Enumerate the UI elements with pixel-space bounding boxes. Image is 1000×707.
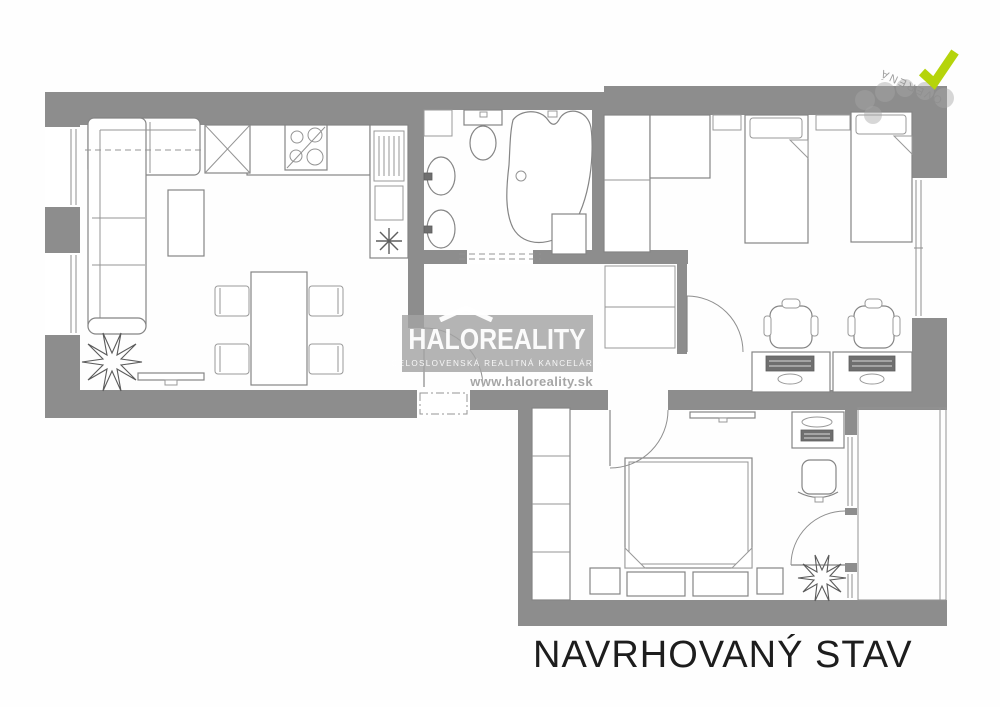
wall-living-hall	[408, 125, 424, 328]
pier-balcony-top	[845, 410, 857, 435]
wardrobe	[532, 408, 570, 600]
wall-top-bathroom	[424, 92, 604, 110]
wardrobe	[604, 115, 710, 252]
sliding-door-bathroom	[459, 250, 541, 264]
balcony-floor	[858, 408, 940, 600]
balcony-railing	[940, 408, 946, 600]
tap	[548, 111, 557, 117]
nightstand	[757, 568, 783, 594]
plant	[798, 555, 846, 601]
plant	[82, 333, 142, 391]
mouse	[860, 374, 884, 384]
house-roof-icon	[436, 304, 496, 322]
door-kids-room	[687, 296, 743, 352]
keyboard	[801, 430, 833, 441]
kids-bedroom	[604, 112, 912, 392]
wall-bottom	[518, 600, 947, 626]
wall-kids-right-bottom	[912, 318, 947, 392]
shelf	[816, 115, 850, 130]
tall-cabinet	[205, 125, 250, 173]
wall-master-top-right	[668, 390, 947, 410]
watermark: HALOREALITY CELOSLOVENSKÁ REALITNÁ KANCE…	[402, 315, 593, 372]
toilet	[464, 110, 502, 160]
keyboard	[849, 356, 895, 371]
sink	[375, 186, 403, 220]
door-balcony	[791, 511, 845, 565]
window-kids-right	[914, 180, 923, 316]
dining-set	[215, 272, 343, 385]
stove	[285, 125, 327, 170]
window-living-bottom	[45, 253, 80, 335]
entry-door	[417, 390, 470, 418]
wall-tv	[690, 412, 755, 422]
wall-master-top-left	[470, 390, 608, 410]
tv-stand	[138, 373, 204, 385]
single-bed	[745, 115, 808, 243]
watermark-url: www.haloreality.sk	[402, 374, 593, 389]
bed-bench	[627, 572, 685, 596]
keyboard	[766, 356, 814, 371]
dish-drainer	[374, 131, 404, 181]
speaker	[802, 417, 832, 427]
shower-niche	[424, 110, 452, 136]
bathroom-cabinet	[552, 214, 586, 254]
shelf	[713, 115, 741, 130]
sofa-armrest	[88, 318, 146, 334]
double-bed	[625, 458, 752, 568]
mouse	[778, 374, 802, 384]
balcony	[858, 408, 946, 600]
watermark-brand: HALOREALITY	[409, 326, 586, 355]
wall-bathroom-bottom-left	[424, 250, 467, 264]
washbasin	[424, 157, 455, 195]
wall-top-right	[604, 86, 947, 115]
office-chair	[764, 299, 818, 348]
pillow	[750, 118, 802, 138]
desk	[792, 412, 844, 448]
tv	[138, 373, 204, 380]
pier-balcony-low	[845, 563, 857, 572]
bed-bench	[693, 572, 748, 596]
nightstand	[590, 568, 620, 594]
wall-vestibule	[677, 264, 687, 354]
hall-closet	[605, 266, 675, 348]
bathroom	[424, 110, 592, 264]
single-bed	[851, 112, 912, 242]
watermark-tagline: CELOSLOVENSKÁ REALITNÁ KANCELÁRIA	[391, 358, 603, 368]
window-living-top	[45, 127, 80, 207]
window-master-right	[848, 437, 852, 598]
desk	[833, 352, 912, 392]
wall-master-left	[518, 405, 532, 626]
office-chair	[848, 299, 900, 348]
desk	[752, 352, 830, 392]
plan-caption: NAVRHOVANÝ STAV	[533, 634, 903, 677]
dining-table	[251, 272, 307, 385]
coffee-table	[168, 190, 204, 256]
floorplan-image: HALOREALITY CELOSLOVENSKÁ REALITNÁ KANCE…	[0, 0, 1000, 707]
check-icon	[908, 38, 978, 98]
wall-bottom-living	[45, 390, 417, 418]
office-chair	[798, 460, 838, 502]
washbasin	[424, 210, 455, 248]
pier-balcony-mid	[845, 508, 857, 515]
master-bedroom	[532, 408, 846, 601]
